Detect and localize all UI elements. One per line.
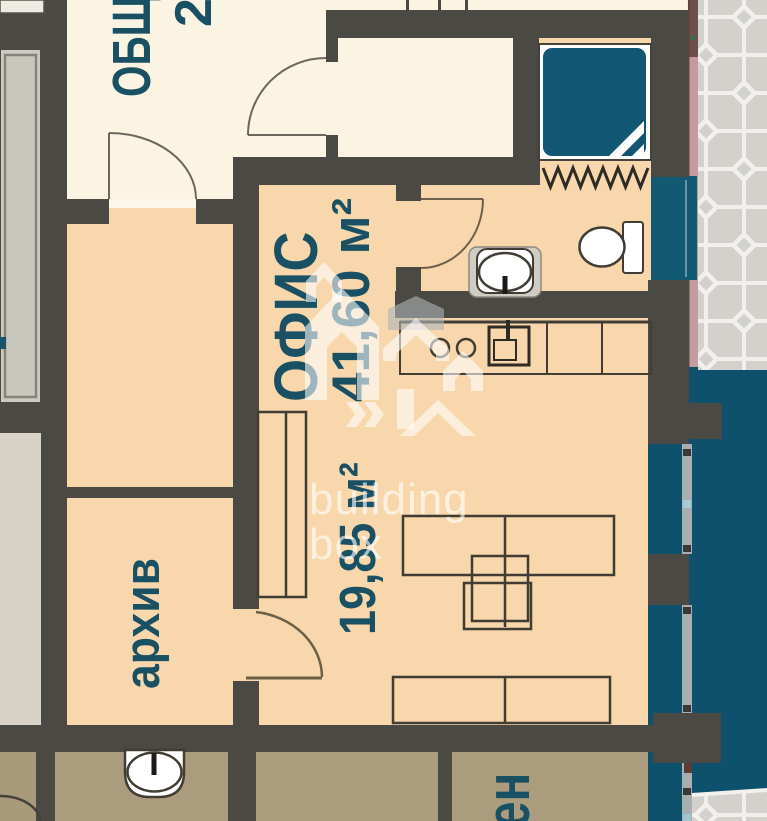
svg-text:архив: архив bbox=[115, 558, 169, 689]
svg-text:ОБЩ: ОБЩ bbox=[102, 0, 162, 97]
svg-text:box: box bbox=[309, 520, 383, 569]
svg-text:2: 2 bbox=[165, 0, 223, 27]
svg-text:ен: ен bbox=[473, 773, 542, 821]
svg-text:building: building bbox=[309, 475, 469, 524]
